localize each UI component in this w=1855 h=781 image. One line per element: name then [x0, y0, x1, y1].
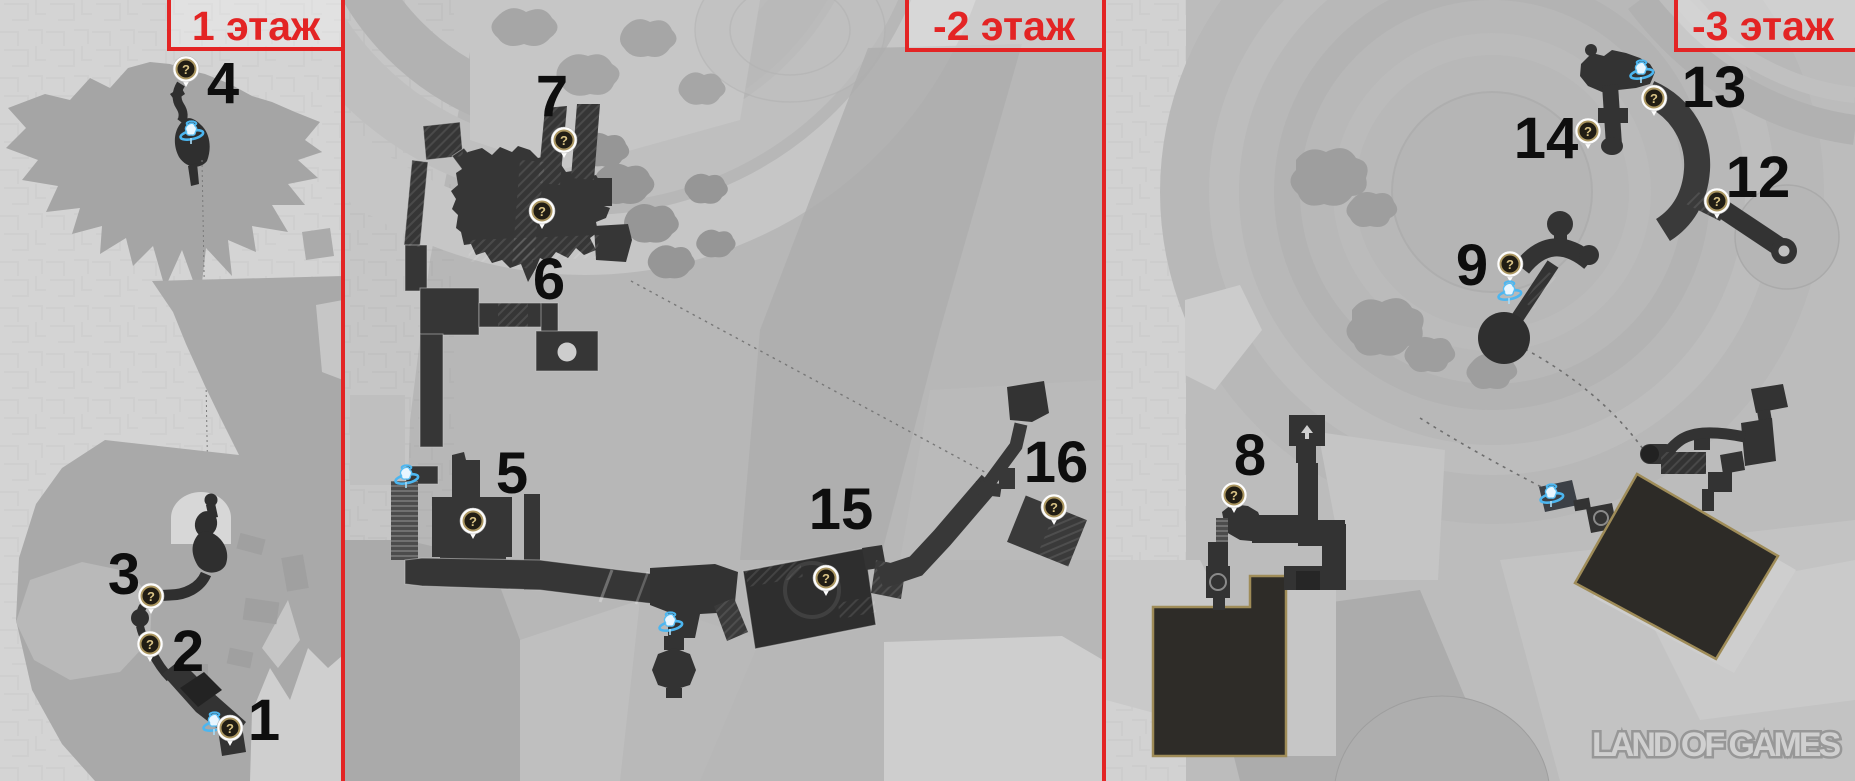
svg-text:16: 16 [1024, 430, 1089, 495]
svg-text:2: 2 [172, 619, 204, 684]
svg-text:9: 9 [1456, 233, 1488, 298]
svg-text:1 этаж: 1 этаж [192, 3, 321, 49]
svg-text:LAND OF GAMES: LAND OF GAMES [1592, 726, 1841, 764]
svg-text:3: 3 [108, 542, 140, 607]
svg-text:14: 14 [1514, 106, 1579, 171]
svg-text:12: 12 [1726, 145, 1791, 210]
svg-text:-3 этаж: -3 этаж [1692, 3, 1835, 49]
svg-text:8: 8 [1234, 423, 1266, 488]
svg-text:4: 4 [207, 51, 239, 116]
svg-text:1: 1 [248, 688, 280, 753]
svg-text:15: 15 [809, 477, 874, 542]
svg-text:6: 6 [533, 247, 565, 312]
svg-text:5: 5 [496, 441, 528, 506]
svg-text:13: 13 [1682, 55, 1747, 120]
svg-text:7: 7 [536, 64, 568, 129]
svg-text:-2 этаж: -2 этаж [933, 3, 1076, 49]
